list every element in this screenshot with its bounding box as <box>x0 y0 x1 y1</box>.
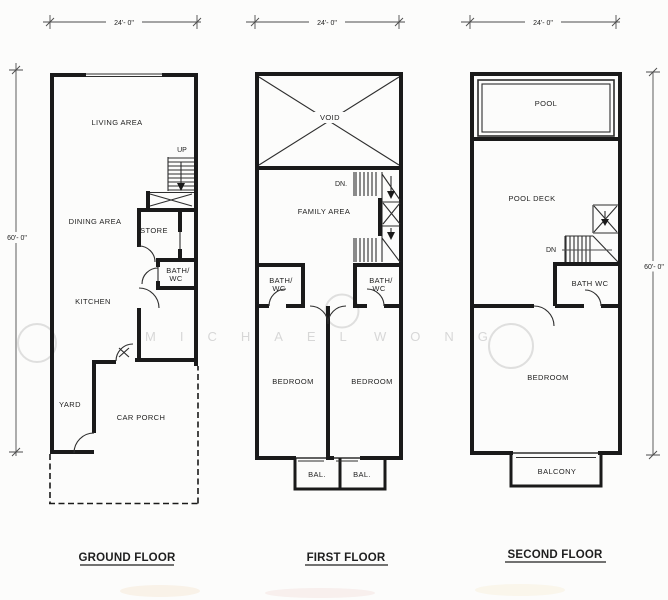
smudge <box>265 588 375 598</box>
floor-plan-sheet: MICHAEL WONG 24'- 0" 60'- 0" <box>0 0 668 600</box>
smudge <box>120 585 200 597</box>
ground-width-dim-label: 24'- 0" <box>114 20 134 27</box>
dining-area-label: DINING AREA <box>69 217 122 226</box>
pool-label: POOL <box>535 99 557 108</box>
kitchen-label: KITCHEN <box>75 297 111 306</box>
smudge <box>475 584 565 596</box>
bedroom-left-label: BEDROOM <box>272 377 314 386</box>
pool-deck-label: POOL DECK <box>508 194 555 203</box>
ground-bath-label-line2: WC <box>169 274 182 283</box>
first-dn-label: DN. <box>335 181 347 188</box>
ground-floor-title: GROUND FLOOR <box>79 552 176 564</box>
ground-height-dim-label: 60'- 0" <box>7 235 27 242</box>
family-area-label: FAMILY AREA <box>298 207 350 216</box>
living-area-label: LIVING AREA <box>91 118 142 127</box>
floor-titles: GROUND FLOOR FIRST FLOOR SECOND FLOOR <box>79 549 606 565</box>
void-label: VOID <box>320 113 340 122</box>
first-width-dim-label: 24'- 0" <box>317 20 337 27</box>
yard-label: YARD <box>59 400 81 409</box>
store-label: STORE <box>140 226 168 235</box>
second-floor-title: SECOND FLOOR <box>507 549 603 561</box>
second-bath-label: BATH WC <box>572 279 609 288</box>
second-height-dim-label: 60'- 0" <box>644 264 664 271</box>
second-dn-label: DN <box>546 247 556 254</box>
bal-right-label: BAL. <box>353 470 371 479</box>
first-floor-title: FIRST FLOOR <box>307 552 386 564</box>
first-bath-right-line2: WC <box>372 284 385 293</box>
floor-plan-drawing: MICHAEL WONG 24'- 0" 60'- 0" <box>0 0 668 600</box>
watermark-text-second: WONG <box>374 329 512 344</box>
second-bedroom-label: BEDROOM <box>527 373 569 382</box>
second-width-dim-label: 24'- 0" <box>533 20 553 27</box>
balcony-label: BALCONY <box>538 467 577 476</box>
car-porch-label: CAR PORCH <box>117 413 166 422</box>
bedroom-right-label: BEDROOM <box>351 377 393 386</box>
bal-left-label: BAL. <box>308 470 326 479</box>
first-bath-left-line2: WC <box>272 284 285 293</box>
ground-up-label: UP <box>177 147 187 154</box>
